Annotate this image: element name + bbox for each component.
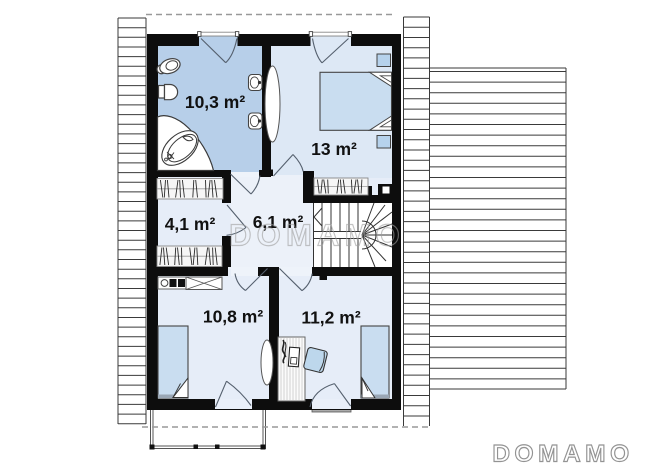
svg-text:DOMAMO: DOMAMO xyxy=(229,217,405,252)
svg-text:DOMAMO: DOMAMO xyxy=(492,441,633,468)
svg-text:10,8 m²: 10,8 m² xyxy=(203,307,263,327)
svg-text:11,2 m²: 11,2 m² xyxy=(301,308,361,328)
svg-text:10,3 m²: 10,3 m² xyxy=(185,92,245,112)
svg-text:13 m²: 13 m² xyxy=(311,139,357,159)
svg-text:4,1 m²: 4,1 m² xyxy=(165,214,216,234)
